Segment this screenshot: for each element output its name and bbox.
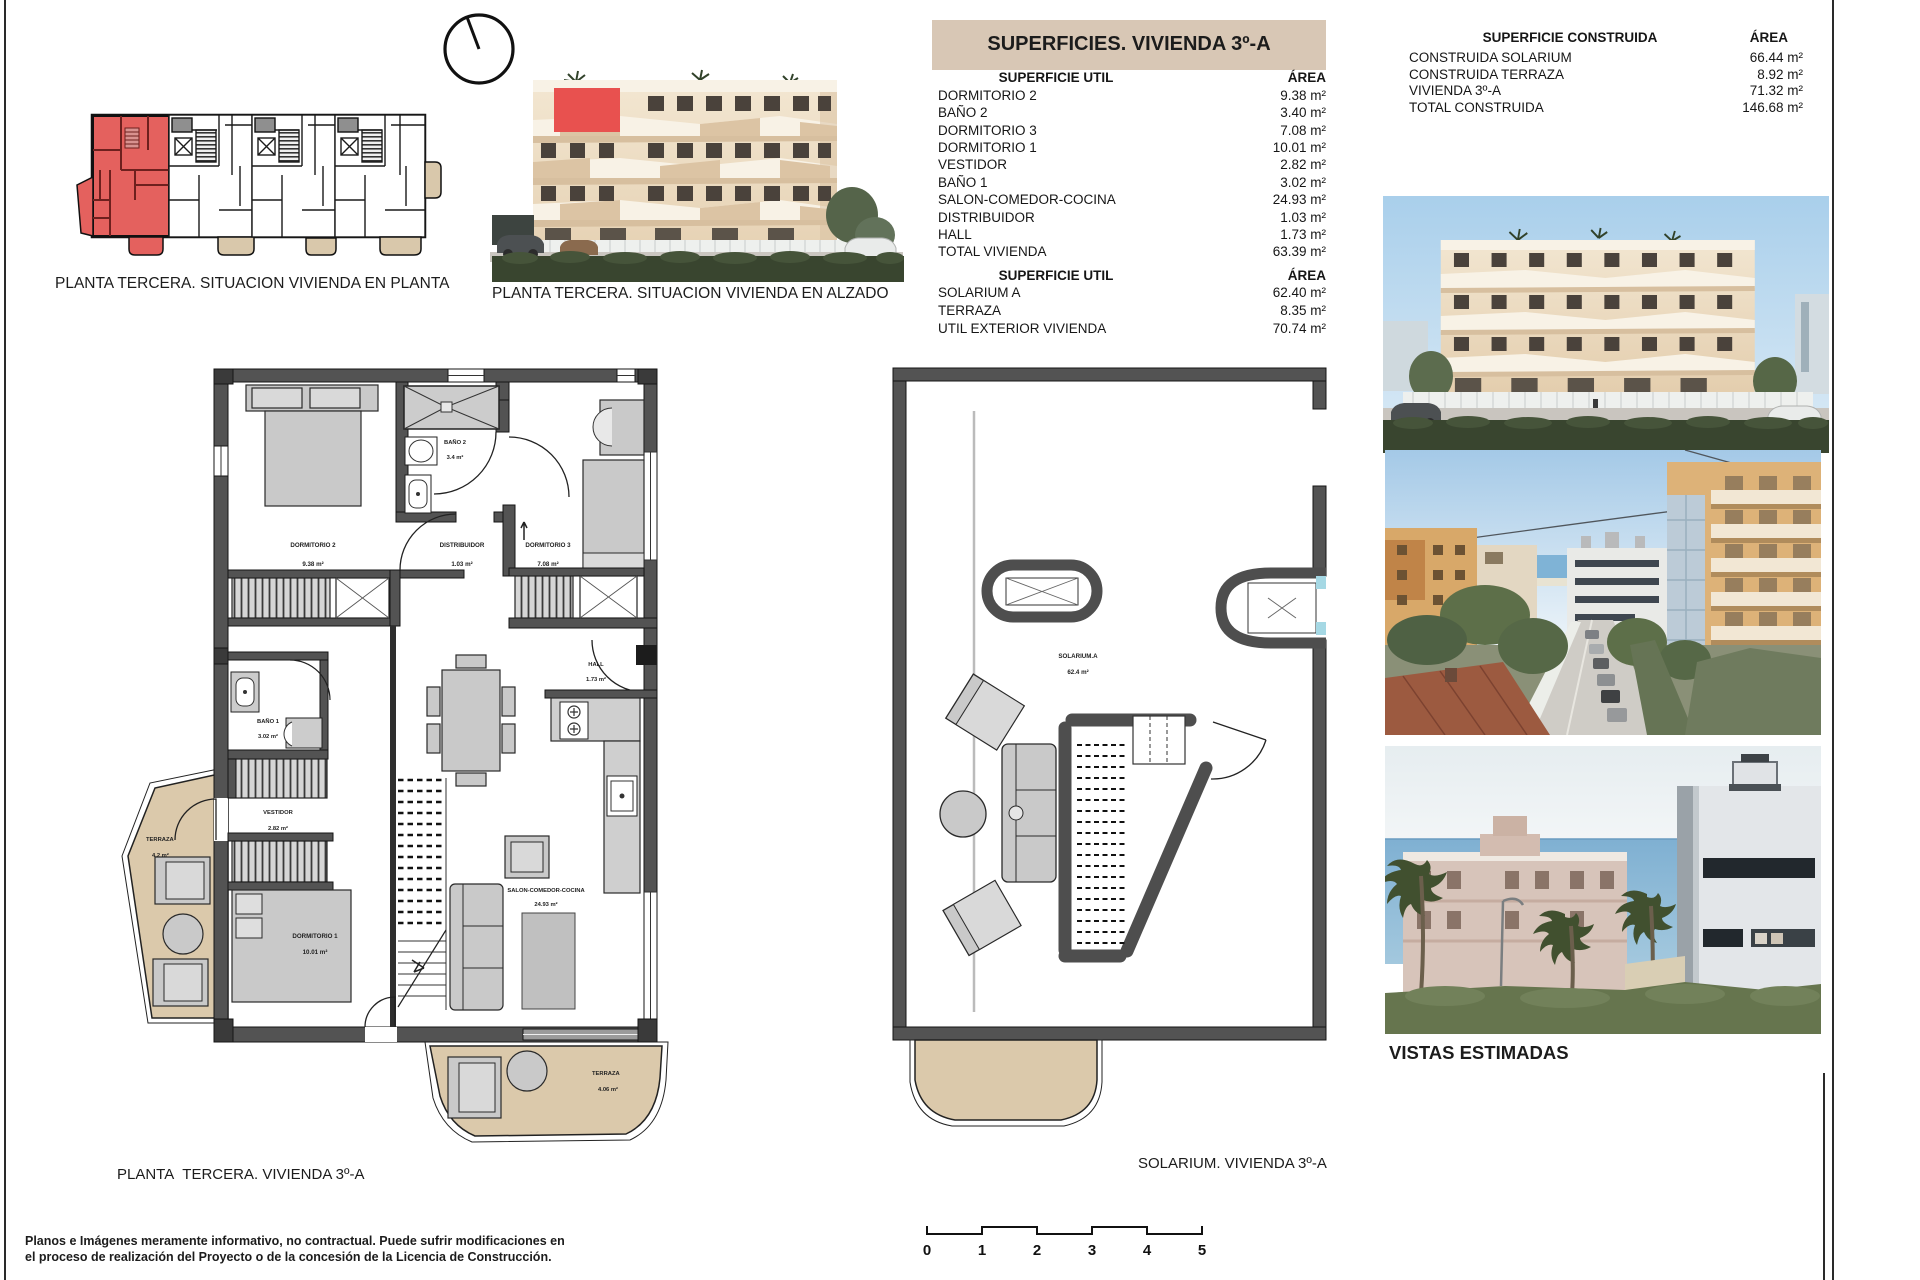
svg-text:BAÑO 1: BAÑO 1 [257, 718, 280, 725]
svg-text:1.73 m²: 1.73 m² [586, 676, 606, 683]
svg-text:0: 0 [923, 1242, 931, 1259]
svg-text:HALL: HALL [588, 662, 604, 668]
svg-text:VESTIDOR: VESTIDOR [263, 810, 293, 816]
svg-text:SOLARIUM.A: SOLARIUM.A [1058, 653, 1098, 660]
svg-text:DORMITORIO 2: DORMITORIO 2 [290, 542, 336, 549]
svg-text:BAÑO 2: BAÑO 2 [444, 439, 466, 446]
svg-text:24.93 m²: 24.93 m² [534, 901, 557, 908]
svg-text:DISTRIBUIDOR: DISTRIBUIDOR [440, 542, 485, 549]
svg-text:9.38 m²: 9.38 m² [302, 561, 323, 568]
svg-text:7.08 m²: 7.08 m² [537, 561, 558, 568]
svg-text:1: 1 [978, 1242, 986, 1259]
svg-text:TERRAZA: TERRAZA [146, 837, 175, 843]
svg-text:4.2 m²: 4.2 m² [152, 852, 169, 859]
svg-text:4.06 m²: 4.06 m² [598, 1086, 618, 1093]
svg-text:2: 2 [1033, 1242, 1041, 1259]
svg-text:1.03 m²: 1.03 m² [451, 561, 472, 568]
svg-text:3.4 m²: 3.4 m² [447, 454, 464, 461]
svg-text:10.01 m²: 10.01 m² [303, 949, 328, 956]
svg-text:DORMITORIO 3: DORMITORIO 3 [525, 542, 571, 549]
svg-text:2.82 m²: 2.82 m² [268, 825, 288, 832]
svg-text:4: 4 [1143, 1242, 1152, 1259]
svg-text:TERRAZA: TERRAZA [592, 1071, 621, 1077]
svg-text:62.4 m²: 62.4 m² [1067, 669, 1088, 676]
svg-text:3.02 m²: 3.02 m² [258, 733, 278, 740]
svg-text:DORMITORIO 1: DORMITORIO 1 [292, 933, 338, 940]
svg-text:SALON-COMEDOR-COCINA: SALON-COMEDOR-COCINA [507, 888, 585, 894]
svg-text:5: 5 [1198, 1242, 1206, 1259]
svg-text:3: 3 [1088, 1242, 1096, 1259]
